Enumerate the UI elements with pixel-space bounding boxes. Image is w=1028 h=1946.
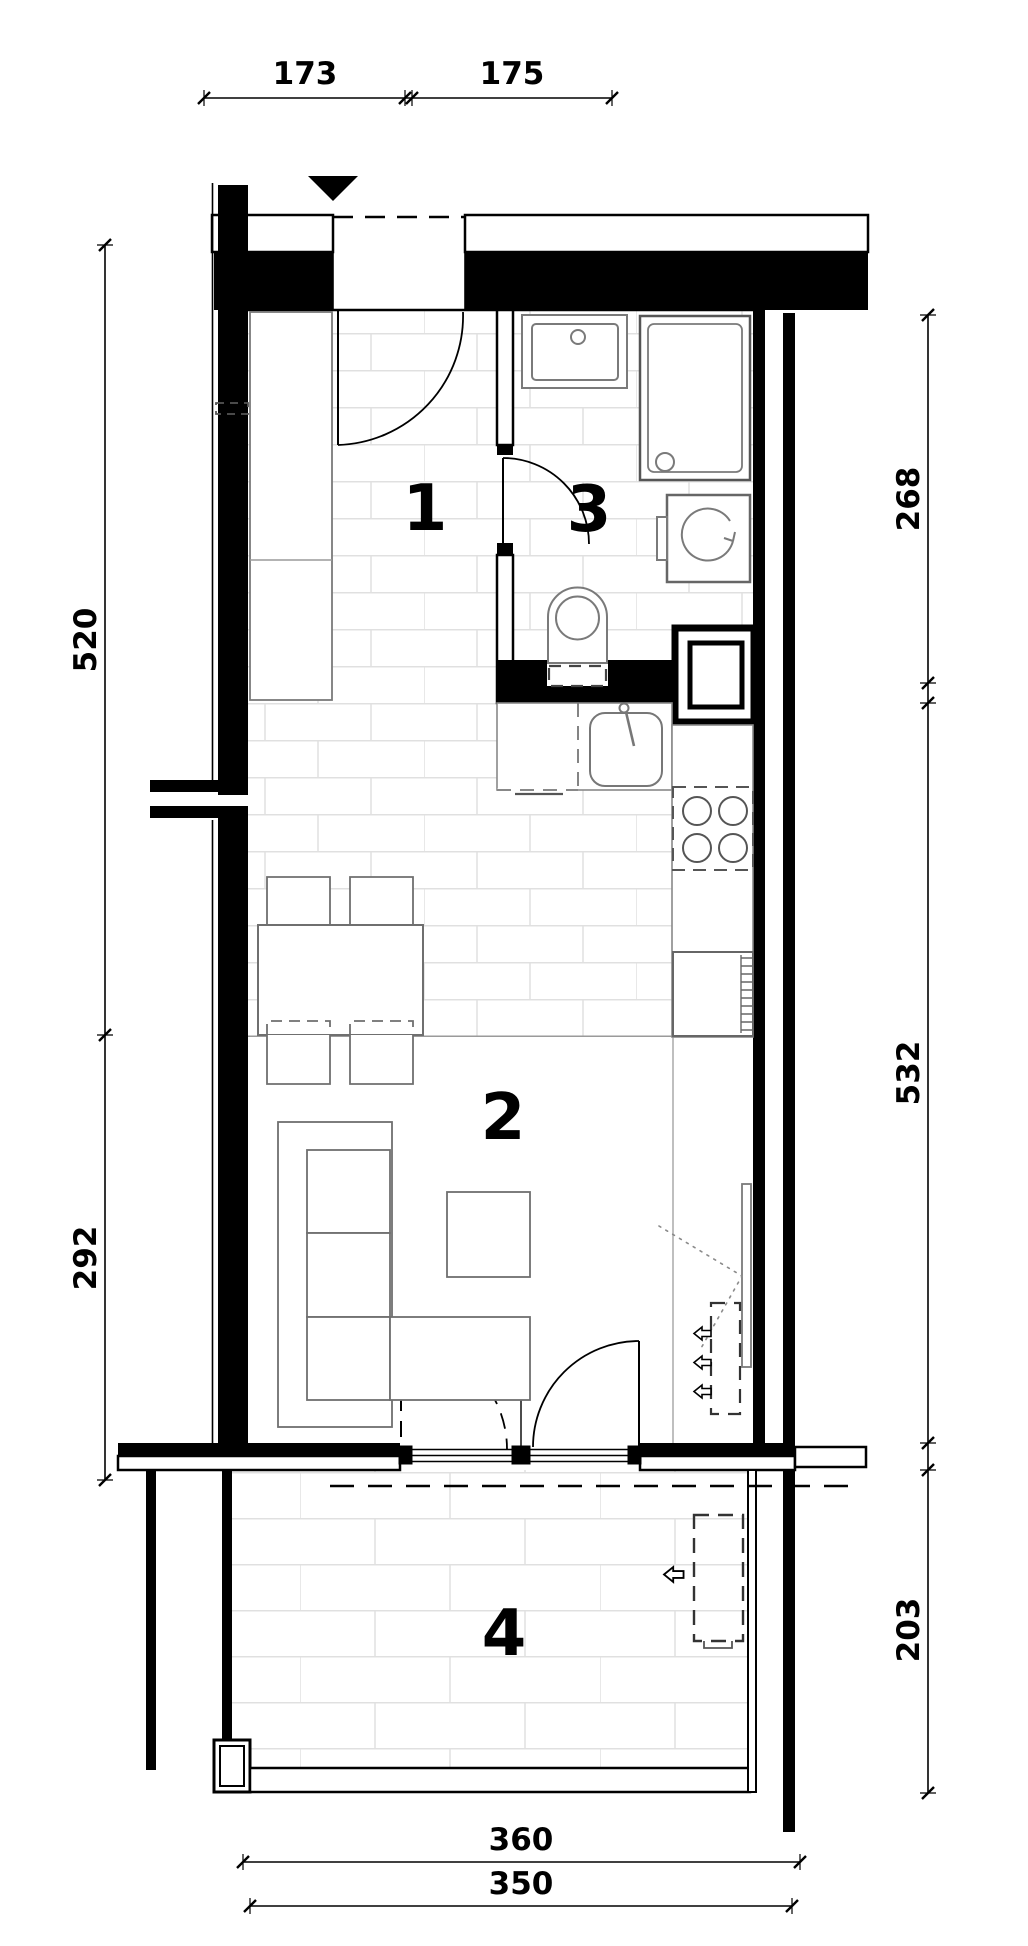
floor-plan-drawing: 1 2 3 4 173 175 520 292 268 532 2 bbox=[0, 0, 1028, 1946]
dim-bottom-1: 360 bbox=[489, 1822, 554, 1858]
dimension-bottom: 360 350 bbox=[237, 1822, 806, 1914]
room-4-label: 4 bbox=[482, 1597, 527, 1671]
washing-machine bbox=[657, 495, 750, 582]
vent-shaft bbox=[675, 628, 754, 722]
dim-right-2: 532 bbox=[891, 1041, 927, 1106]
dim-right-3: 203 bbox=[891, 1598, 927, 1663]
right-exterior-wall bbox=[753, 310, 795, 1832]
dim-top-1: 173 bbox=[273, 56, 338, 92]
dim-left-2: 292 bbox=[68, 1226, 104, 1291]
dimension-top: 173 175 bbox=[198, 56, 618, 106]
fridge bbox=[673, 952, 753, 1036]
party-wall-stub bbox=[795, 1447, 866, 1467]
dimension-right: 268 532 203 bbox=[891, 309, 936, 1799]
hall-wardrobe bbox=[250, 312, 332, 700]
bathroom-sink bbox=[522, 315, 627, 388]
left-exterior-wall bbox=[150, 183, 248, 1443]
kitchen-sink bbox=[590, 704, 662, 787]
dim-bottom-2: 350 bbox=[489, 1866, 554, 1902]
balcony-parapet bbox=[250, 1768, 750, 1792]
room-2-label: 2 bbox=[481, 1081, 526, 1155]
floor-plan-page: 1 2 3 4 173 175 520 292 268 532 2 bbox=[0, 0, 1028, 1946]
living-furniture bbox=[278, 1122, 751, 1427]
dimension-left: 520 292 bbox=[68, 239, 113, 1486]
party-wall-stub bbox=[150, 780, 218, 792]
top-exterior-wall bbox=[212, 215, 868, 310]
dim-left-1: 520 bbox=[68, 608, 104, 673]
folding-bed-dashed bbox=[694, 1303, 740, 1414]
coffee-table bbox=[447, 1192, 530, 1277]
tv-panel bbox=[742, 1184, 751, 1367]
fold-direction-arrow-icon bbox=[694, 1356, 711, 1369]
fold-direction-arrow-icon bbox=[694, 1385, 711, 1398]
fold-direction-arrow-icon bbox=[694, 1327, 711, 1340]
sofa-chaise bbox=[390, 1317, 530, 1400]
south-living-wall bbox=[118, 1443, 866, 1470]
dining-table bbox=[258, 925, 423, 1035]
room-1-label: 1 bbox=[403, 472, 448, 546]
room-3-label: 3 bbox=[567, 473, 612, 547]
entrance-marker-icon bbox=[308, 176, 358, 201]
dim-top-2: 175 bbox=[480, 56, 545, 92]
dim-right-1: 268 bbox=[891, 467, 927, 532]
party-wall-stub bbox=[150, 806, 218, 818]
shower bbox=[640, 316, 750, 480]
